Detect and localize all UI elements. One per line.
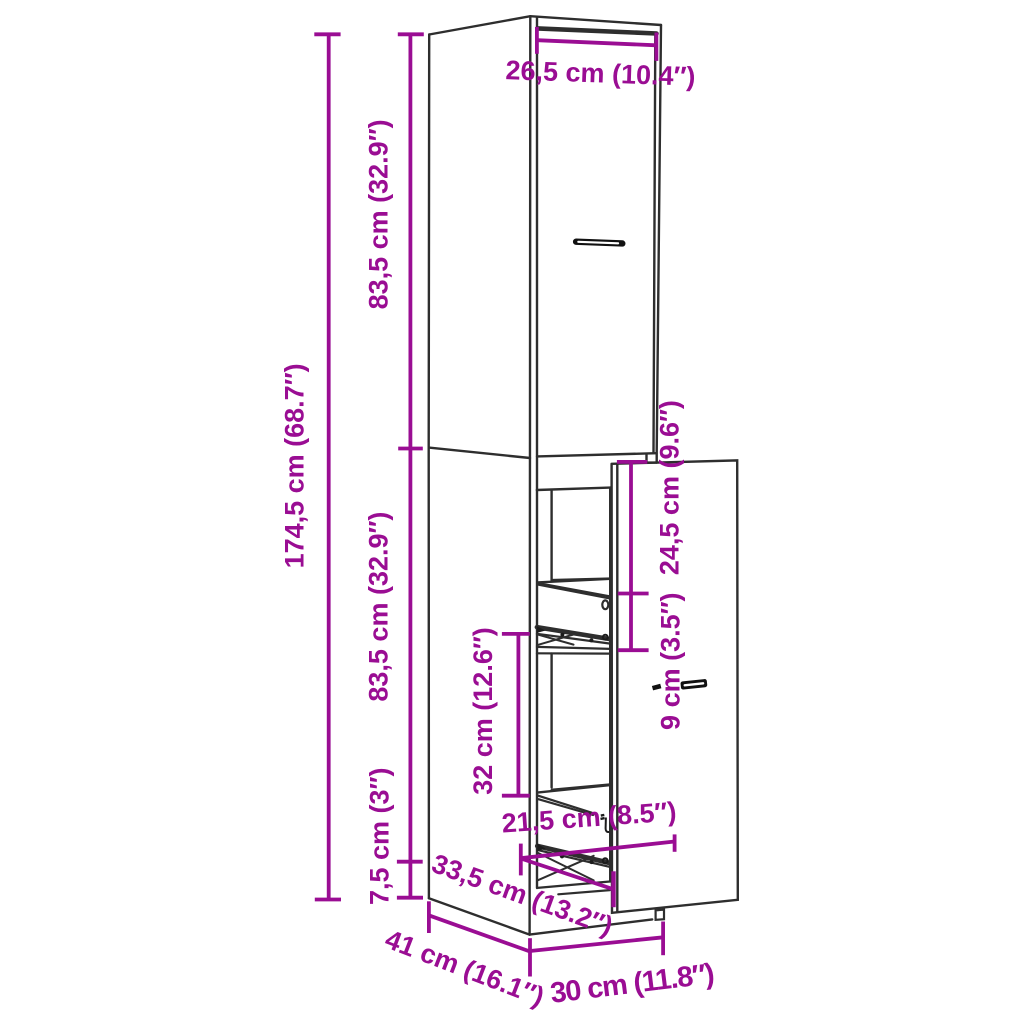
svg-text:9 cm (3.5″): 9 cm (3.5″)	[656, 592, 686, 730]
svg-text:7,5 cm (3″): 7,5 cm (3″)	[364, 768, 394, 906]
svg-text:32 cm (12.6″): 32 cm (12.6″)	[468, 627, 498, 795]
svg-text:83,5 cm (32.9″): 83,5 cm (32.9″)	[363, 119, 393, 309]
svg-text:174,5 cm (68.7″): 174,5 cm (68.7″)	[280, 363, 310, 568]
svg-text:24,5 cm (9.6″): 24,5 cm (9.6″)	[655, 400, 685, 575]
svg-text:83,5 cm (32.9″): 83,5 cm (32.9″)	[363, 512, 393, 702]
